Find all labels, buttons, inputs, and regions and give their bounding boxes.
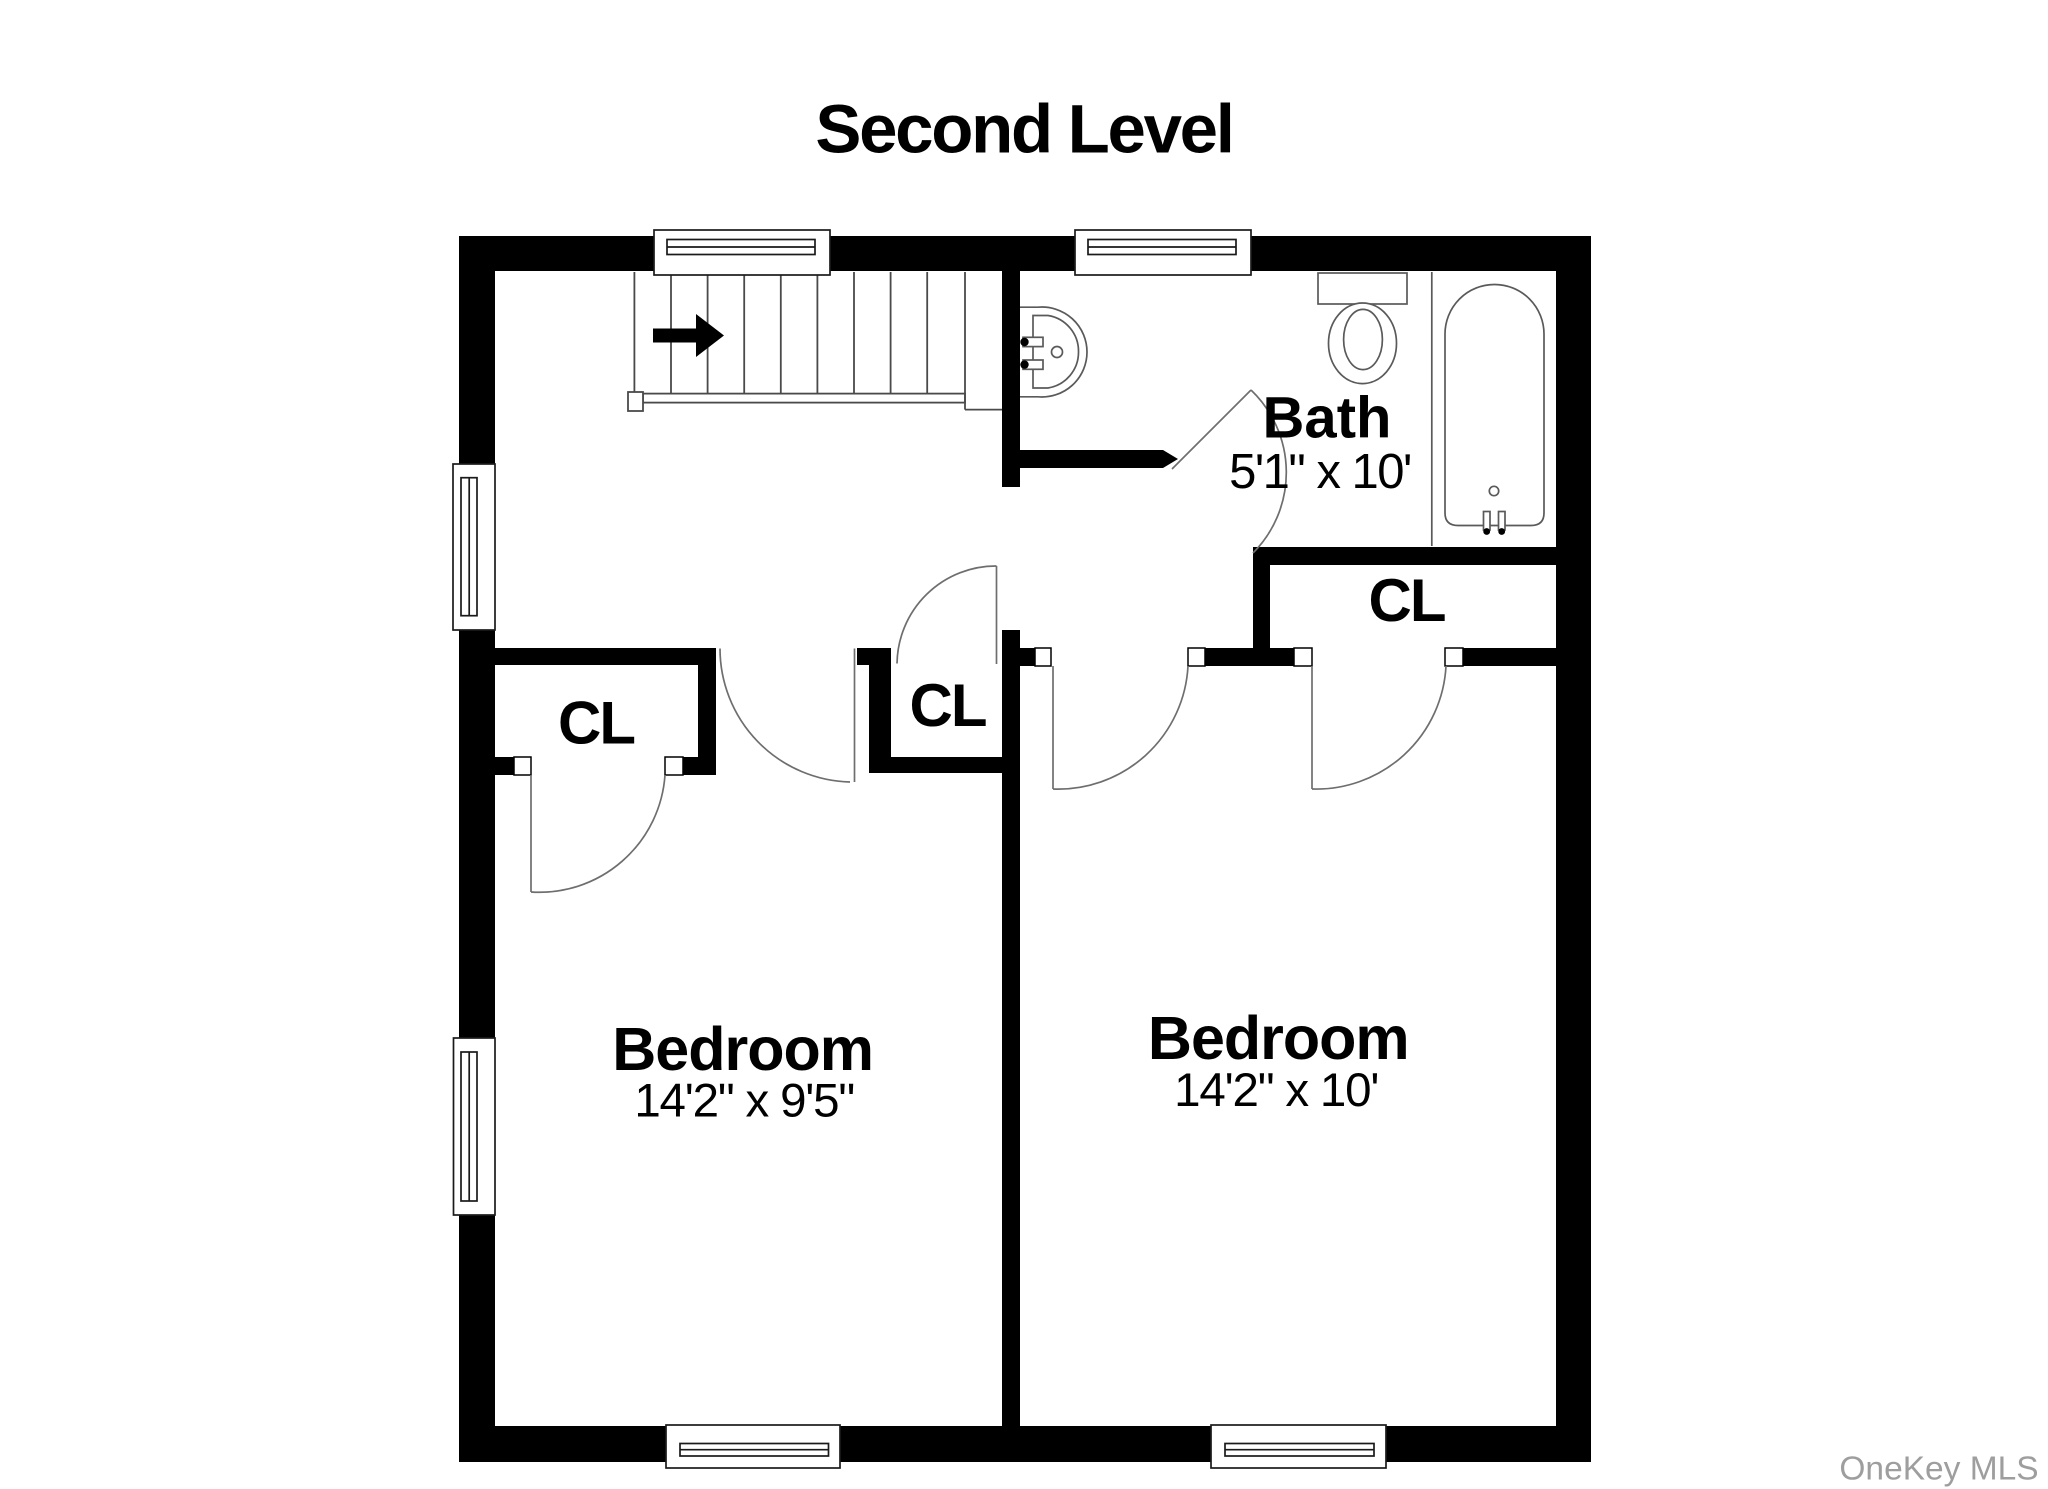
svg-text:CL: CL [910,672,986,739]
svg-text:OneKey MLS: OneKey MLS [1839,1451,2038,1488]
svg-text:CL: CL [1369,567,1445,634]
svg-text:CL: CL [558,689,634,756]
svg-text:Second Level: Second Level [815,91,1232,168]
svg-text:14'2" x 9'5": 14'2" x 9'5" [634,1075,854,1128]
svg-text:14'2" x 10': 14'2" x 10' [1174,1064,1378,1117]
svg-text:Bedroom: Bedroom [1148,1004,1409,1072]
svg-text:5'1" x 10': 5'1" x 10' [1229,445,1411,499]
svg-text:Bedroom: Bedroom [612,1015,873,1083]
svg-text:Bath: Bath [1263,386,1392,451]
